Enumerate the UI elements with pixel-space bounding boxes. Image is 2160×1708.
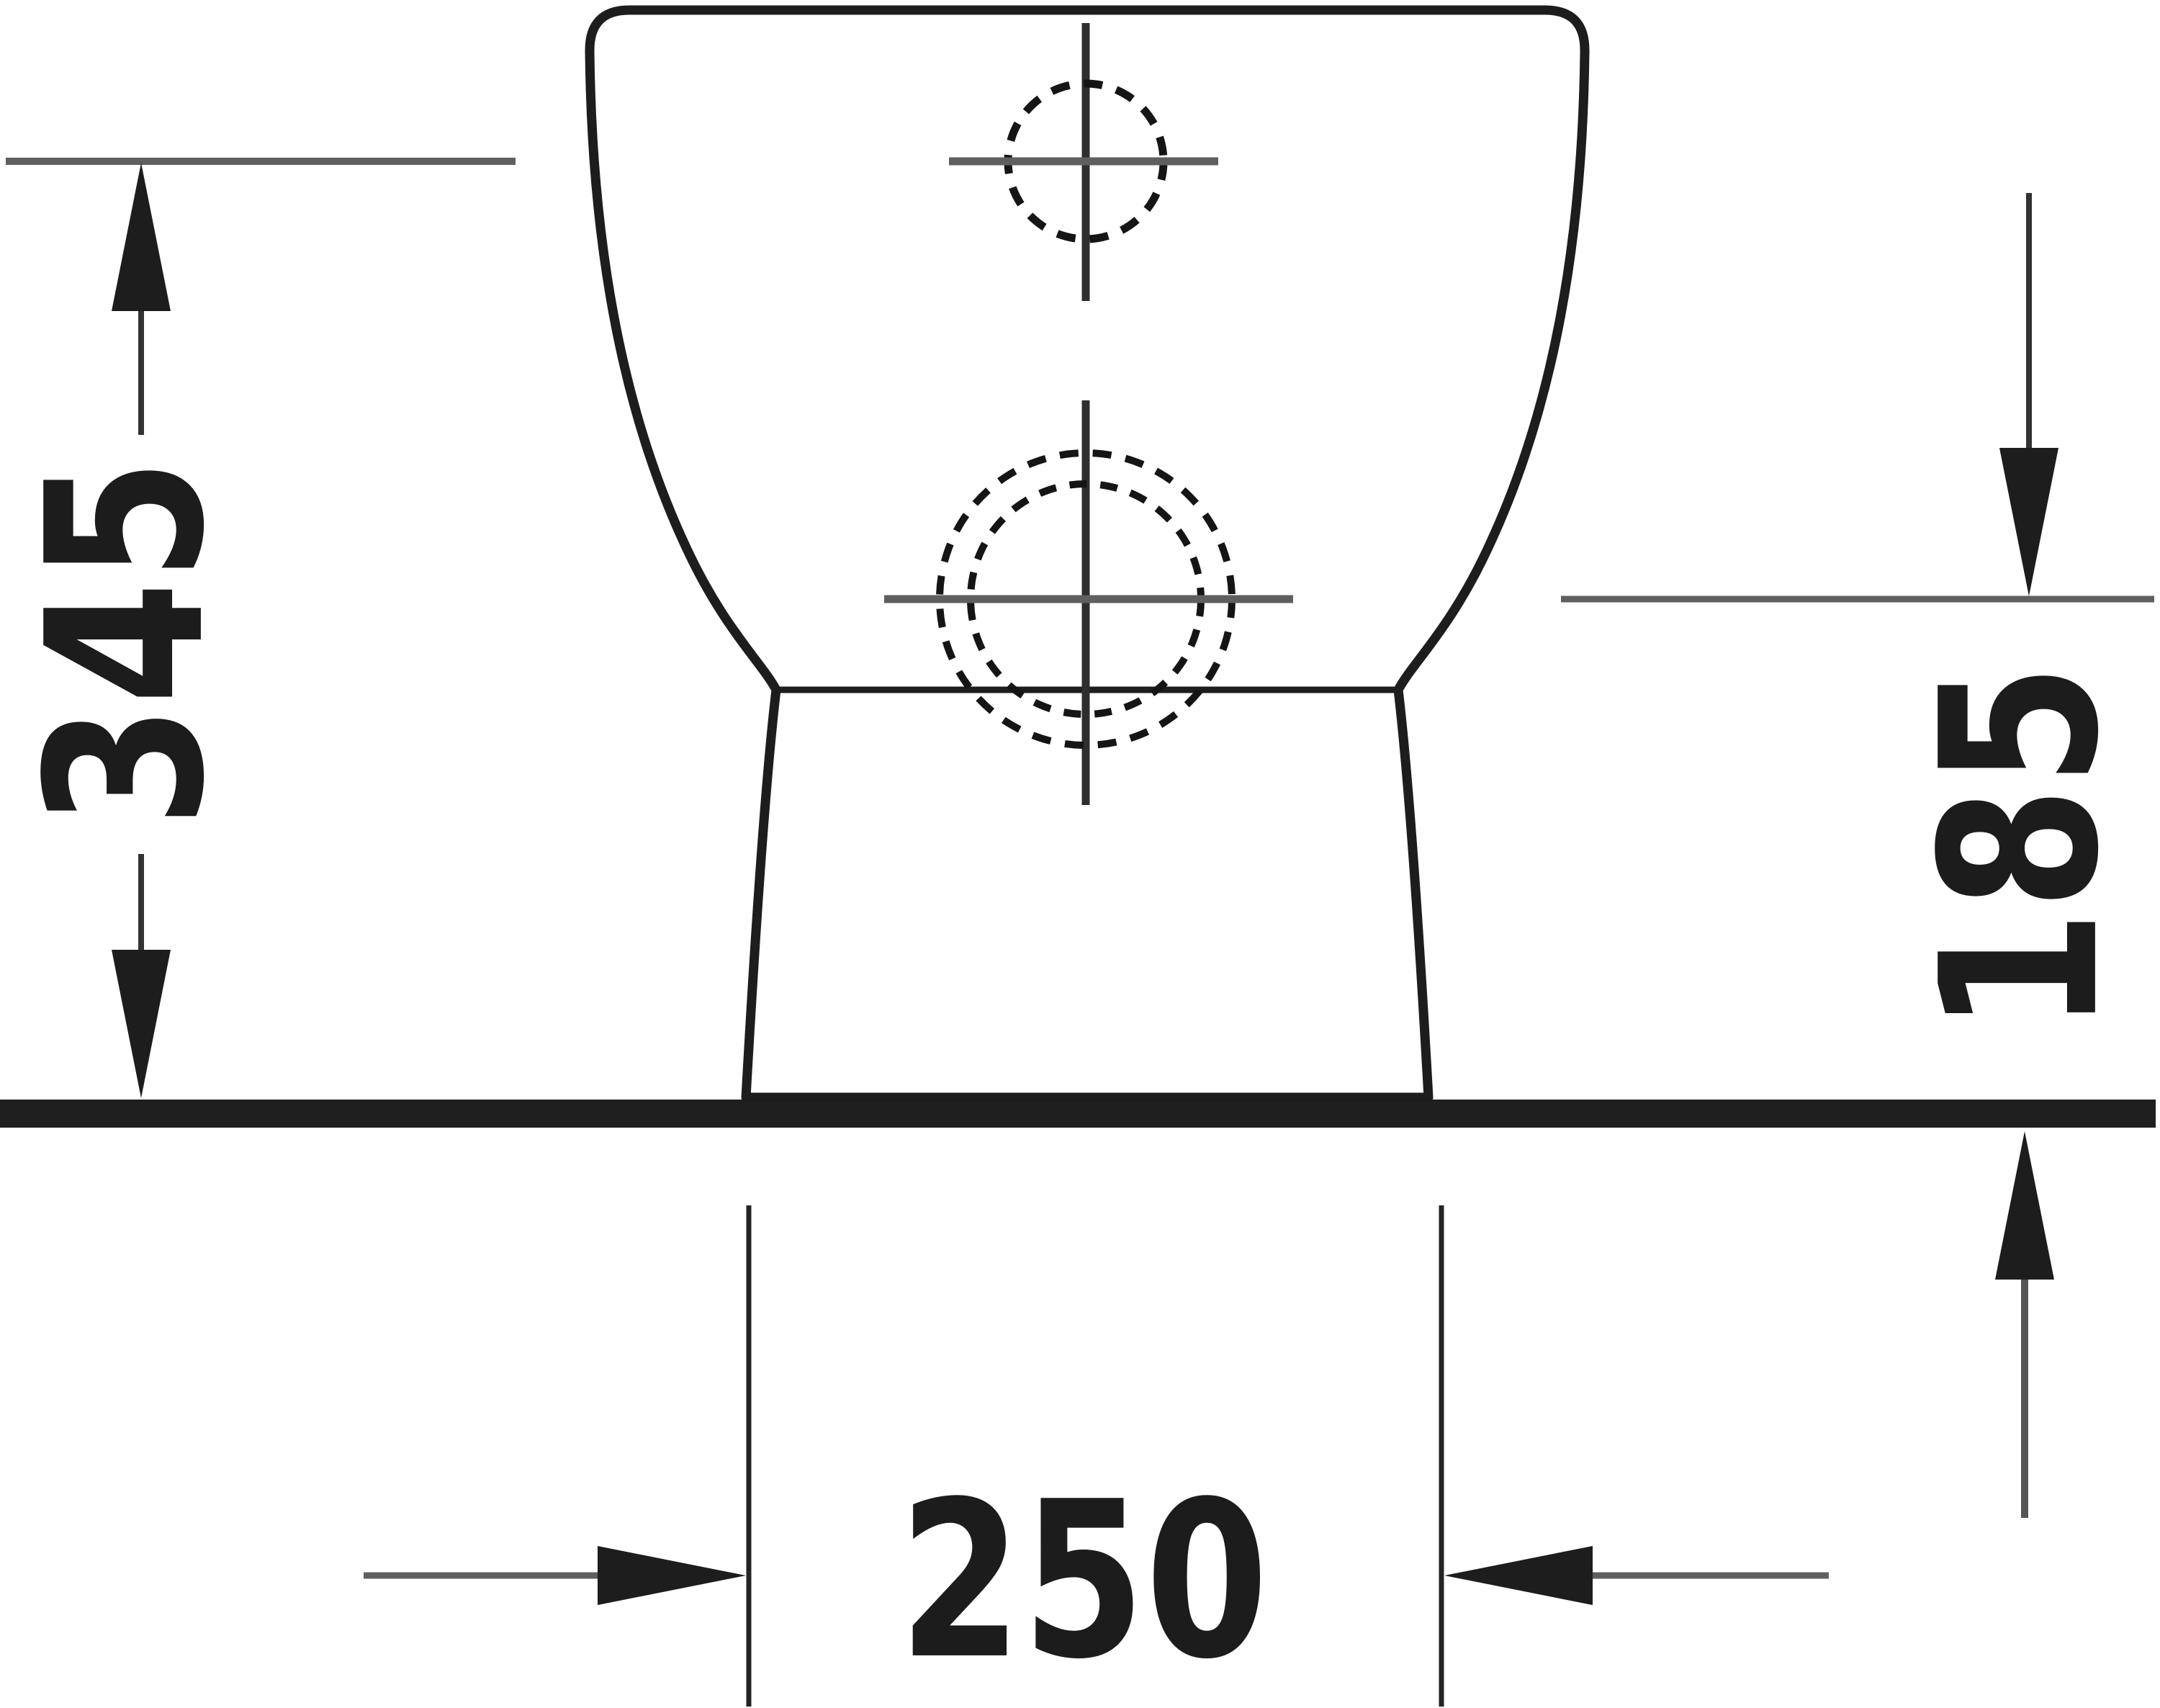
floor-line bbox=[0, 1100, 2156, 1128]
dim-185-arrow-down-icon bbox=[1999, 448, 2058, 596]
dim-250-arrow-right-icon bbox=[598, 1546, 746, 1605]
dim-250-arrow-left-icon bbox=[1444, 1546, 1593, 1605]
dimension-drawing: 345 185 250 bbox=[0, 0, 2160, 1708]
dimension-drawing-canvas: 345 185 250 bbox=[0, 0, 2160, 1708]
dim-345-label: 345 bbox=[0, 458, 252, 828]
dim-250-label: 250 bbox=[899, 1455, 1269, 1707]
dim-345-arrow-up-icon bbox=[112, 163, 171, 311]
dim-345-arrow-down-icon bbox=[112, 950, 171, 1098]
dim-185-label: 185 bbox=[1894, 663, 2146, 1033]
dim-185-arrow-up-icon bbox=[1995, 1131, 2054, 1280]
